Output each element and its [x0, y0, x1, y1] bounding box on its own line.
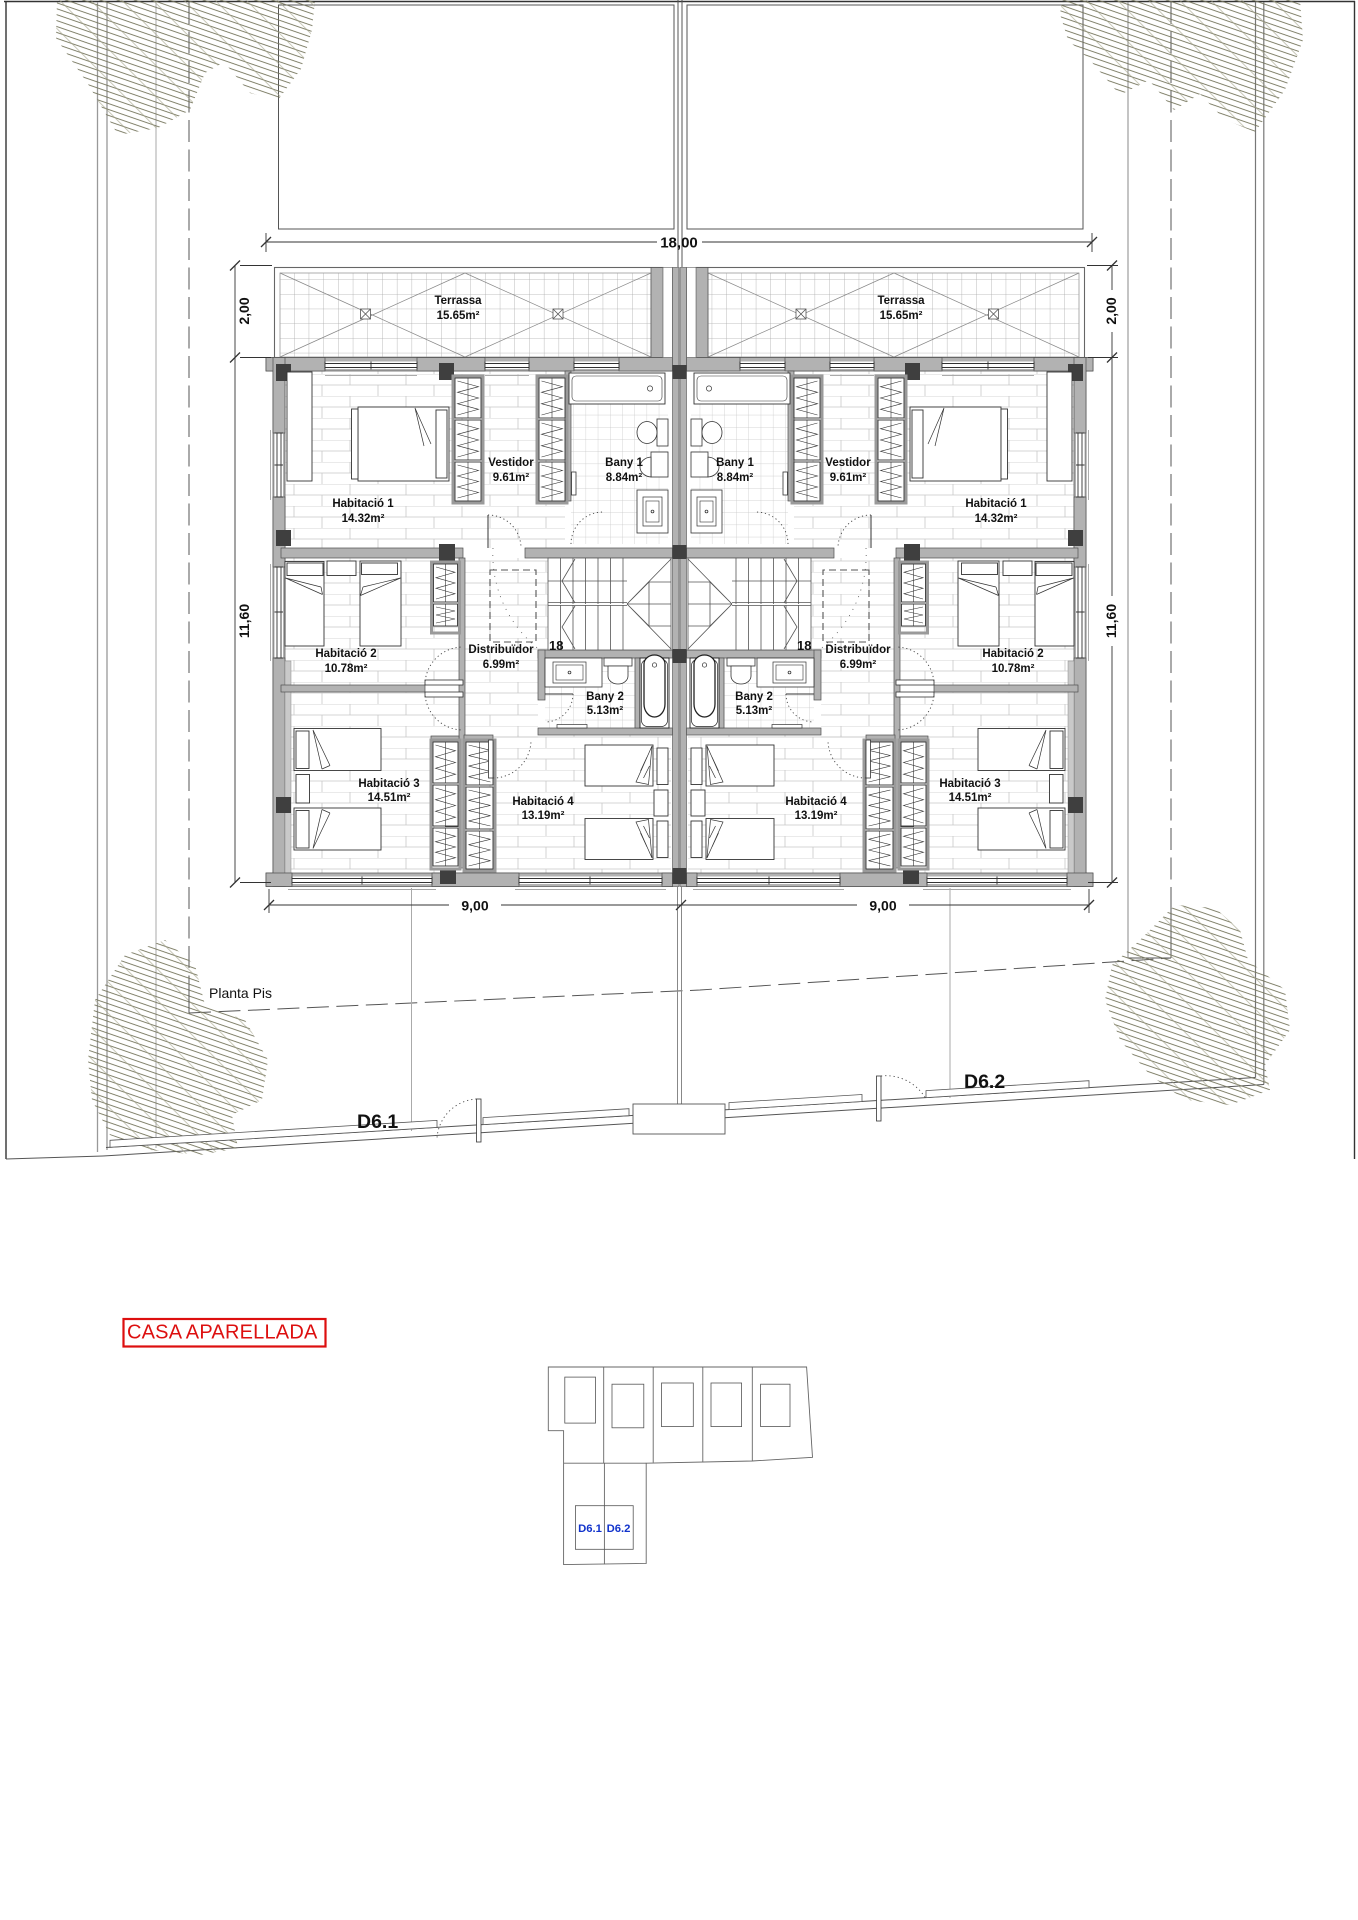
svg-text:Habitació 4: Habitació 4 [512, 796, 574, 808]
svg-text:2,00: 2,00 [236, 297, 252, 324]
svg-text:9,00: 9,00 [869, 898, 896, 914]
svg-text:Terrassa: Terrassa [434, 295, 482, 307]
svg-text:Habitació 2: Habitació 2 [315, 648, 376, 660]
svg-text:14.32m²: 14.32m² [342, 513, 385, 525]
svg-text:8.84m²: 8.84m² [717, 472, 754, 484]
svg-text:Bany 2: Bany 2 [586, 691, 624, 703]
svg-text:Habitació 1: Habitació 1 [332, 498, 394, 510]
svg-text:13.19m²: 13.19m² [522, 810, 565, 822]
svg-text:14.51m²: 14.51m² [368, 792, 411, 804]
svg-text:D6.1: D6.1 [578, 1523, 602, 1535]
svg-text:CASA APARELLADA: CASA APARELLADA [127, 1322, 318, 1344]
svg-text:6.99m²: 6.99m² [483, 659, 520, 671]
svg-text:11,60: 11,60 [1103, 604, 1119, 638]
svg-text:10.78m²: 10.78m² [325, 663, 368, 675]
svg-text:18: 18 [549, 638, 563, 653]
svg-text:Vestidor: Vestidor [825, 457, 871, 469]
svg-text:9.61m²: 9.61m² [493, 472, 530, 484]
svg-text:Distribuïdor: Distribuïdor [825, 644, 891, 656]
svg-text:Habitació 3: Habitació 3 [358, 778, 419, 790]
svg-text:13.19m²: 13.19m² [795, 810, 838, 822]
svg-text:10.78m²: 10.78m² [992, 663, 1035, 675]
svg-text:5.13m²: 5.13m² [736, 705, 773, 717]
svg-text:Habitació 4: Habitació 4 [785, 796, 847, 808]
svg-text:Habitació 2: Habitació 2 [982, 648, 1043, 660]
svg-text:Vestidor: Vestidor [488, 457, 534, 469]
svg-text:D6.2: D6.2 [964, 1071, 1005, 1093]
svg-text:Bany 1: Bany 1 [716, 457, 754, 469]
svg-text:9,00: 9,00 [461, 898, 488, 914]
svg-text:Habitació 1: Habitació 1 [965, 498, 1027, 510]
svg-text:Bany 2: Bany 2 [735, 691, 773, 703]
svg-text:15.65m²: 15.65m² [880, 310, 923, 322]
svg-text:Distribuïdor: Distribuïdor [468, 644, 534, 656]
svg-text:18,00: 18,00 [660, 235, 698, 252]
svg-text:Habitació 3: Habitació 3 [939, 778, 1000, 790]
svg-text:14.51m²: 14.51m² [949, 792, 992, 804]
svg-text:Planta Pis: Planta Pis [209, 985, 272, 1001]
svg-text:18: 18 [797, 638, 811, 653]
svg-text:D6.2: D6.2 [607, 1523, 631, 1535]
svg-text:D6.1: D6.1 [357, 1111, 398, 1133]
svg-text:15.65m²: 15.65m² [437, 310, 480, 322]
svg-text:6.99m²: 6.99m² [840, 659, 877, 671]
svg-text:8.84m²: 8.84m² [606, 472, 643, 484]
svg-text:Bany 1: Bany 1 [605, 457, 643, 469]
svg-text:2,00: 2,00 [1103, 297, 1119, 324]
svg-text:9.61m²: 9.61m² [830, 472, 867, 484]
svg-text:5.13m²: 5.13m² [587, 705, 624, 717]
svg-text:Terrassa: Terrassa [877, 295, 925, 307]
svg-text:11,60: 11,60 [236, 604, 252, 638]
svg-text:14.32m²: 14.32m² [975, 513, 1018, 525]
